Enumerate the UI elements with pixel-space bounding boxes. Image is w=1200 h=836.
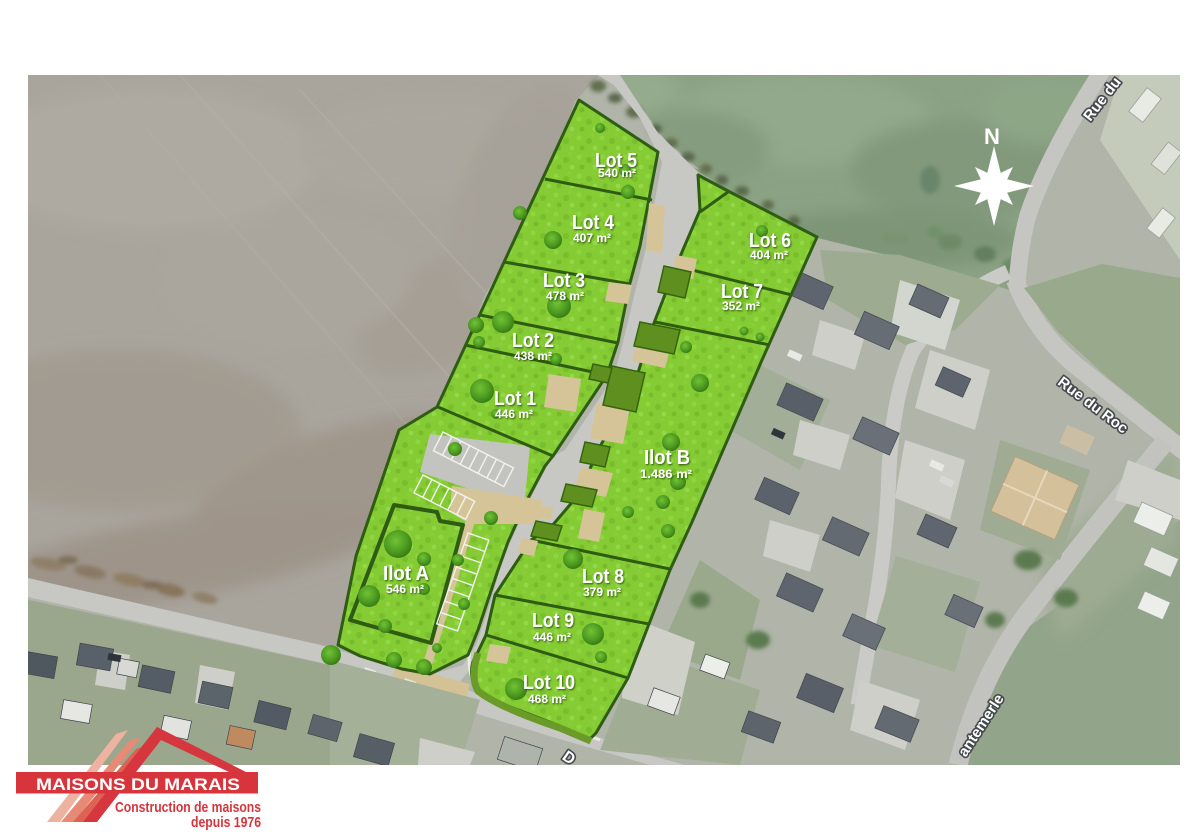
svg-text:438 m²: 438 m² — [514, 349, 552, 363]
svg-text:1.486 m²: 1.486 m² — [640, 467, 692, 481]
svg-text:468 m²: 468 m² — [528, 692, 566, 706]
svg-text:379 m²: 379 m² — [583, 585, 621, 599]
svg-text:Ilot B: Ilot B — [644, 447, 690, 469]
svg-text:540 m²: 540 m² — [598, 166, 636, 180]
svg-text:N: N — [984, 124, 1000, 149]
svg-text:446 m²: 446 m² — [495, 407, 533, 421]
svg-text:Lot 9: Lot 9 — [532, 610, 574, 632]
svg-text:depuis 1976: depuis 1976 — [191, 814, 261, 831]
svg-text:478 m²: 478 m² — [546, 289, 584, 303]
svg-text:352 m²: 352 m² — [722, 299, 760, 313]
svg-text:546 m²: 546 m² — [386, 582, 424, 596]
svg-text:446 m²: 446 m² — [533, 630, 571, 644]
svg-text:MAISONS DU MARAIS: MAISONS DU MARAIS — [36, 775, 240, 794]
svg-text:Lot 10: Lot 10 — [523, 672, 575, 694]
svg-text:404 m²: 404 m² — [750, 248, 788, 262]
svg-text:407 m²: 407 m² — [573, 231, 611, 245]
